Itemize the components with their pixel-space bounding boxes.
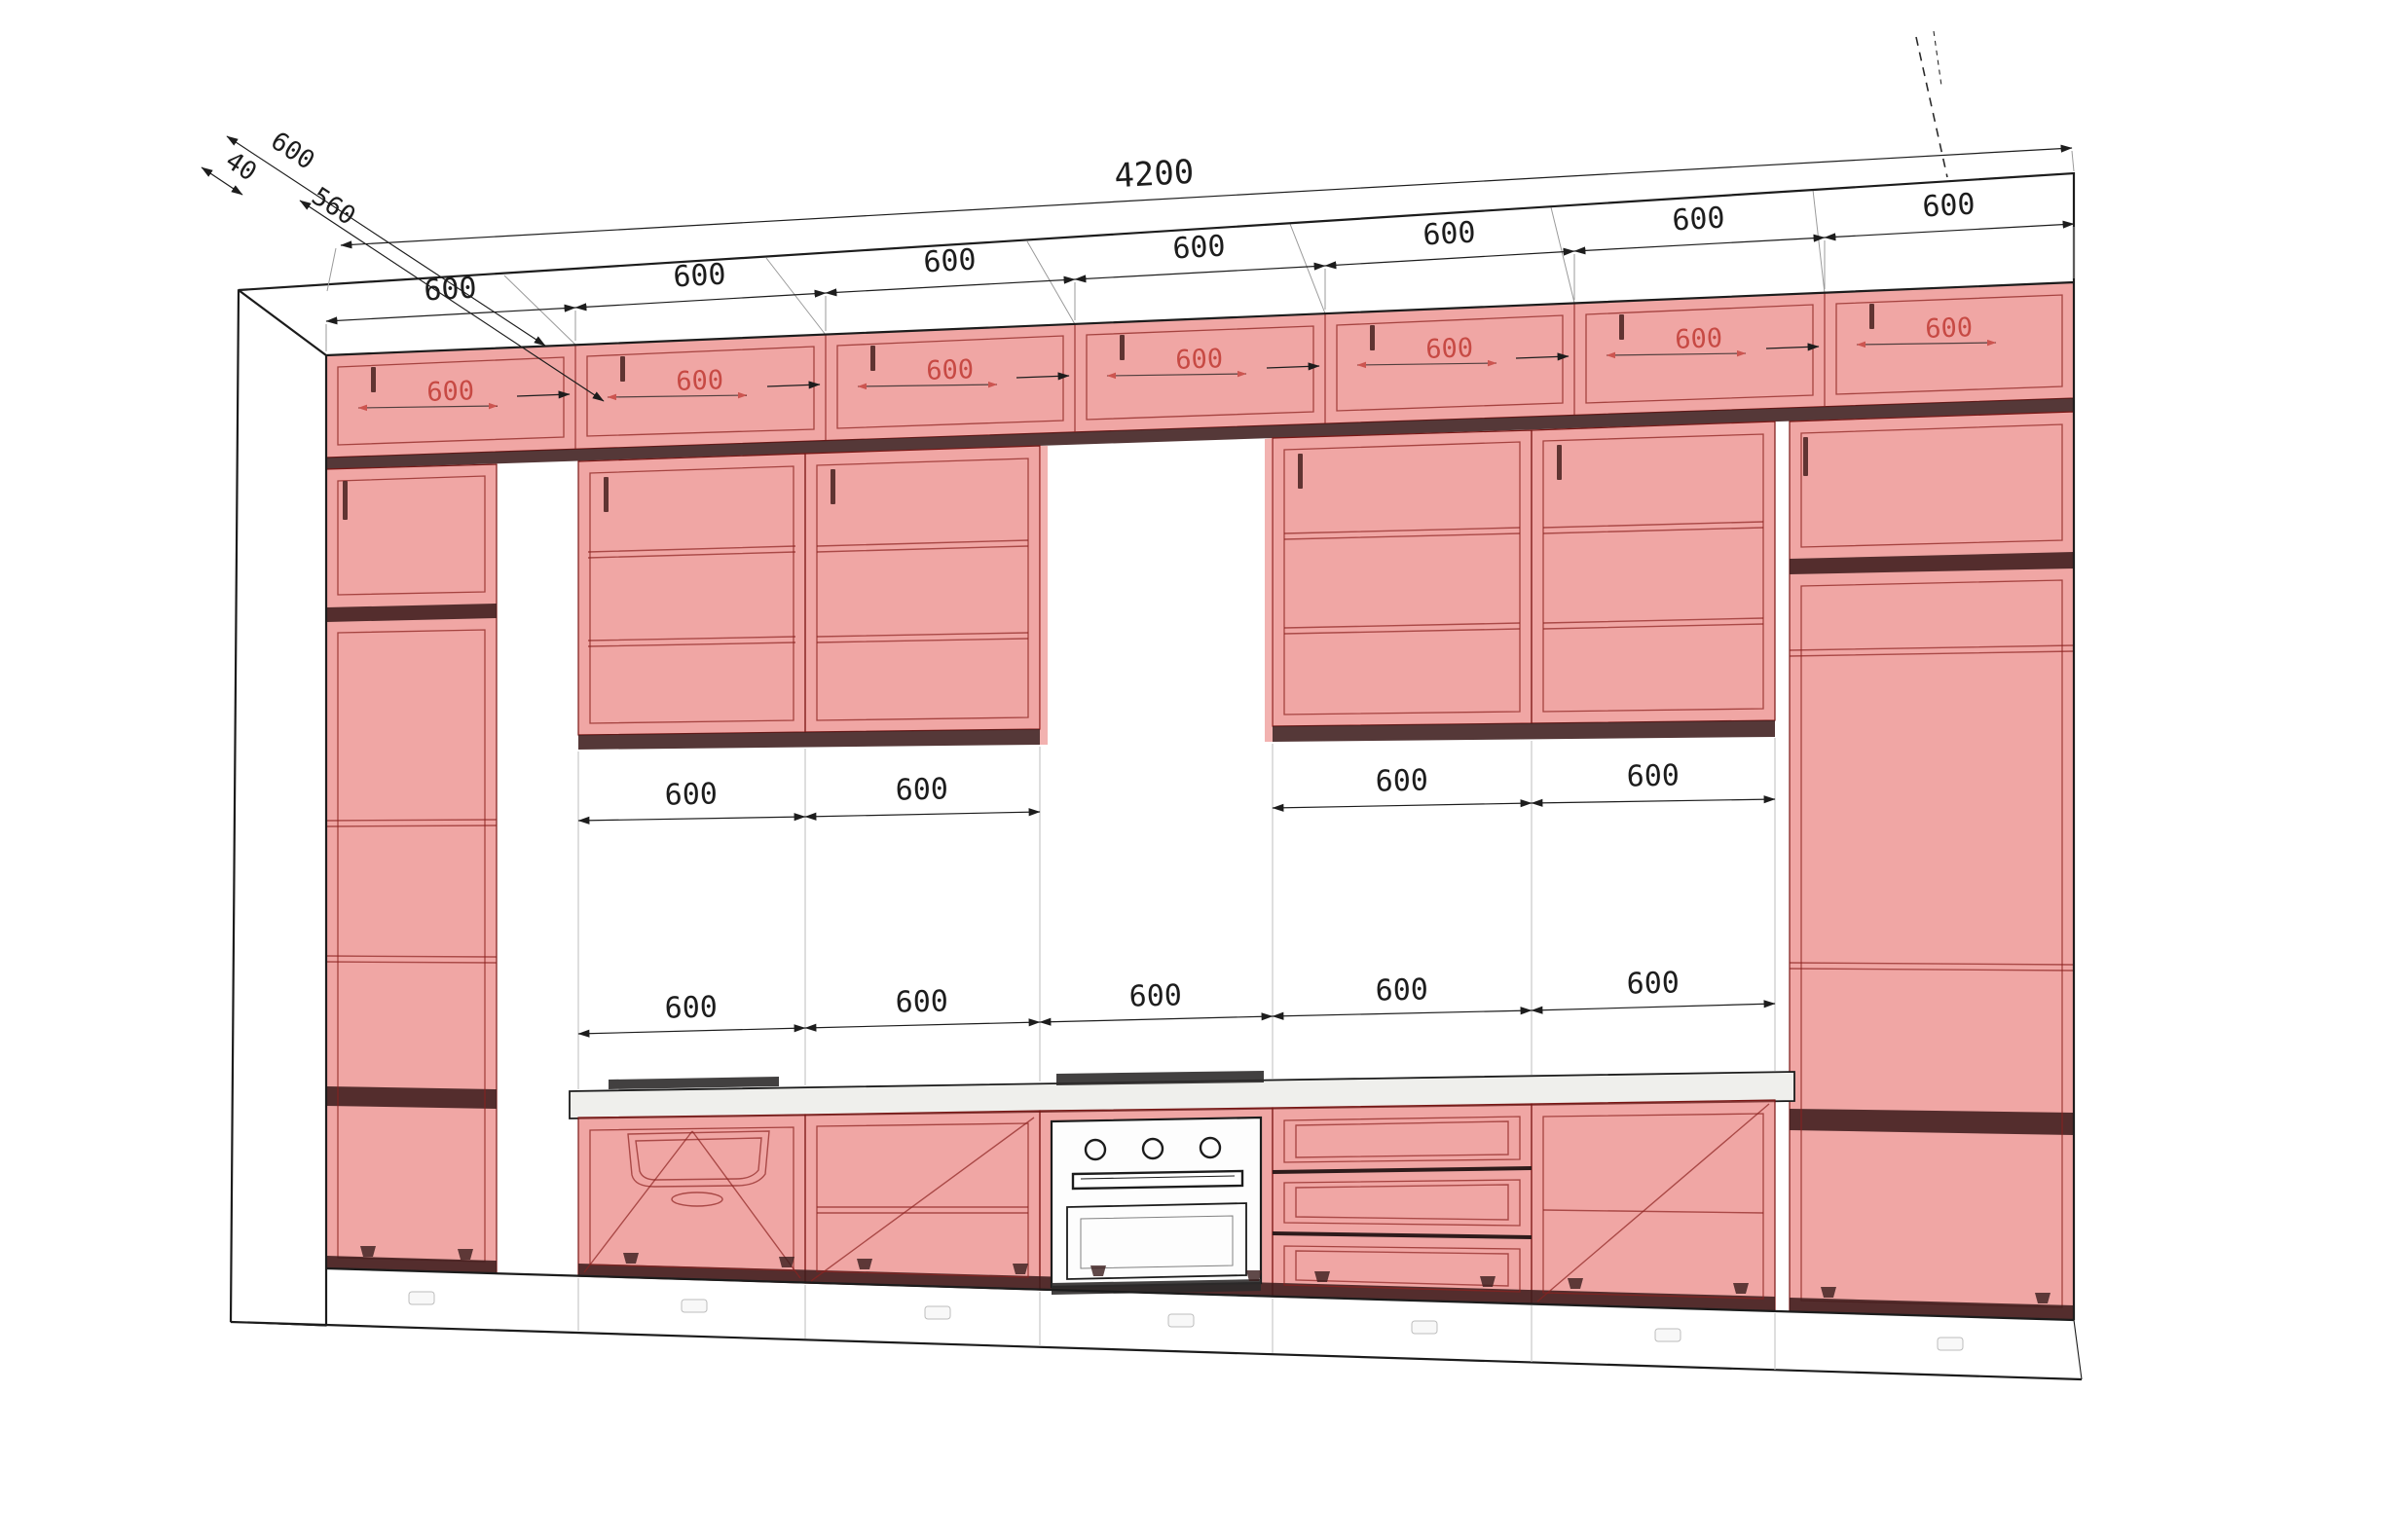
dim-label-upper-2: 600 [895,772,948,807]
dim-label-depth-600: 600 [266,127,320,176]
dim-4200-extensions [327,151,2074,291]
hood-gap-right-side [1265,438,1273,742]
dim-label-top-7: 600 [1921,188,1976,225]
dimension-lower-backsplash-row: 600 600 600 600 600 [578,966,1775,1034]
dim-label-overhang-40: 40 [220,146,262,187]
dim-label-upper-3: 600 [1375,763,1428,798]
left-side-panel [231,290,326,1326]
dim-label-lower-3: 600 [1128,978,1182,1013]
internal-dim-1: 600 [426,376,475,408]
tall-right-handle [1803,437,1808,476]
internal-dim-3: 600 [926,354,975,386]
dim-label-top-2: 600 [672,258,726,295]
internal-dim-7: 600 [1925,312,1974,345]
dim-label-top-6: 600 [1671,202,1725,238]
wall-cabinets [578,422,1775,750]
dim-label-top-5: 600 [1422,216,1476,253]
dim-label-top-1: 600 [423,272,477,309]
oven-knob-2 [1143,1139,1163,1158]
hood-gap-left-side [1040,446,1048,745]
wall-cabinet-3 [1273,430,1532,726]
backsplash-extension-lines [578,738,1775,1089]
base-cabinet-2 [805,1111,1040,1290]
drawer-base-cabinet [1273,1104,1532,1303]
wall-cabinet-1 [578,454,805,735]
internal-dim-2: 600 [676,365,724,397]
wall-cabinet-2 [805,446,1040,732]
dim-label-lower-4: 600 [1375,972,1428,1008]
tall-cabinet-right [1790,412,2074,1320]
dim-label-top-3: 600 [922,243,977,280]
oven [1052,1118,1261,1295]
dim-label-lower-2: 600 [895,984,948,1019]
tall-left-counter-band [326,1086,497,1109]
dimension-total-4200: 4200 [327,148,2074,291]
dim-label-lower-1: 600 [664,990,718,1025]
oven-knob-3 [1200,1138,1220,1157]
dim-label-depth-560: 560 [307,182,361,232]
tall-left-handle [343,481,348,520]
tall-cabinet-left [326,464,497,1273]
sink-counter-mark [609,1077,779,1089]
oven-knob-1 [1086,1140,1105,1159]
oven-handle [1073,1171,1242,1189]
internal-dim-5: 600 [1425,333,1474,365]
tall-left-front [326,464,497,1273]
internal-dim-6: 600 [1675,323,1723,355]
tall-right-front [1790,412,2074,1320]
kitchen-elevation-svg: 4200 600 600 600 600 600 600 600 600 40 … [0,0,2401,1540]
dim-line-depth-600 [227,136,545,346]
floor-line [231,1322,2082,1379]
internal-dim-4: 600 [1175,344,1224,376]
kitchen-elevation-drawing: 4200 600 600 600 600 600 600 600 600 40 … [0,0,2401,1540]
dim-label-upper-4: 600 [1626,758,1680,793]
dim-label-lower-5: 600 [1626,966,1680,1001]
wall-cabinet-4 [1532,422,1775,723]
dimension-upper-backsplash-row: 600 600 600 600 [578,758,1775,821]
dim-label-upper-1: 600 [664,777,718,812]
dim-label-4200: 4200 [1113,153,1195,197]
dim-label-top-4: 600 [1171,230,1226,267]
